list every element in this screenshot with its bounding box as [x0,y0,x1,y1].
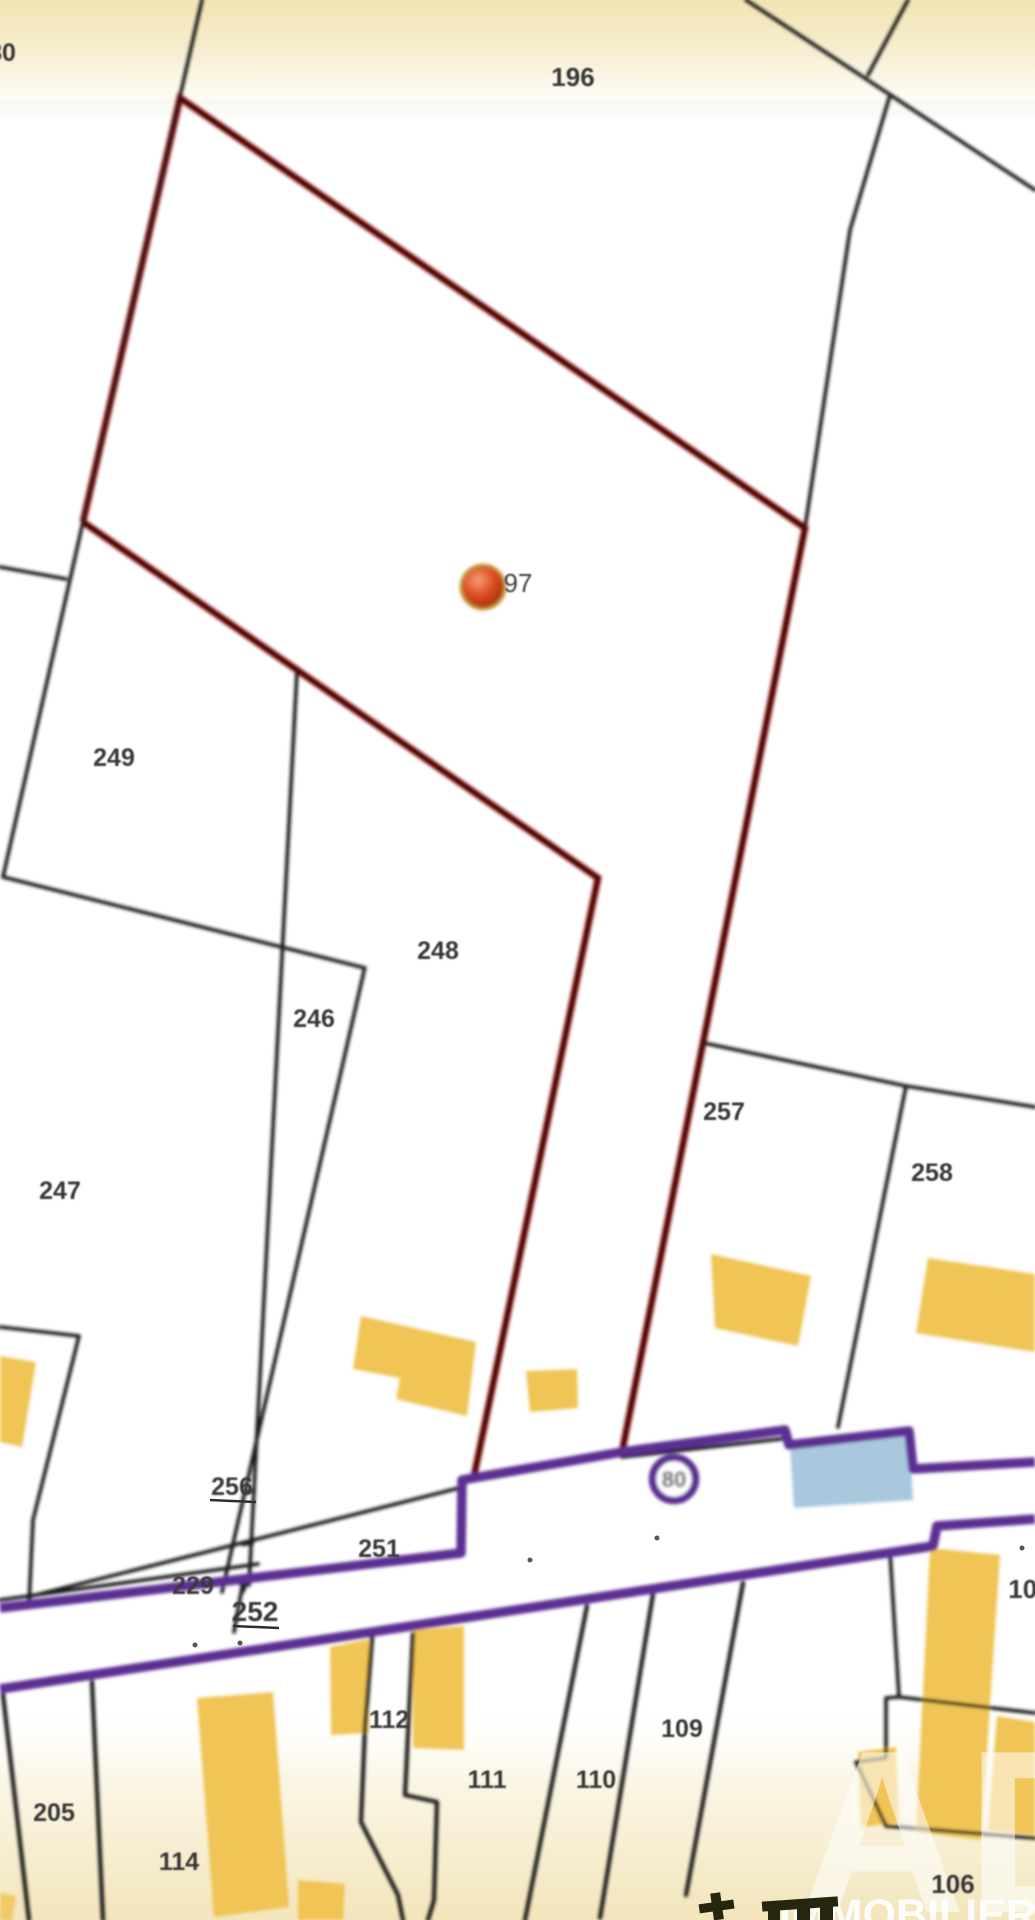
svg-text:111: 111 [468,1766,507,1794]
svg-text:258: 258 [911,1159,953,1187]
svg-text:80: 80 [0,39,16,67]
svg-text:106: 106 [931,1869,974,1899]
svg-text:112: 112 [369,1706,409,1734]
svg-text:110: 110 [576,1766,616,1794]
svg-text:196: 196 [551,62,594,92]
svg-text:251: 251 [358,1535,400,1563]
svg-text:249: 249 [93,744,135,772]
svg-text:247: 247 [39,1177,81,1205]
svg-text:256: 256 [211,1473,253,1501]
svg-text:246: 246 [293,1005,335,1033]
svg-text:205: 205 [33,1799,75,1827]
svg-text:248: 248 [417,937,459,965]
svg-text:252: 252 [232,1596,279,1627]
svg-text:108: 108 [1008,1574,1035,1604]
svg-text:257: 257 [703,1098,745,1126]
svg-text:80: 80 [662,1467,686,1492]
svg-text:114: 114 [159,1848,199,1876]
svg-text:229: 229 [172,1572,214,1600]
svg-text:97: 97 [504,568,533,598]
svg-text:AD: AD [798,1703,1035,1920]
svg-text:109: 109 [661,1715,703,1743]
